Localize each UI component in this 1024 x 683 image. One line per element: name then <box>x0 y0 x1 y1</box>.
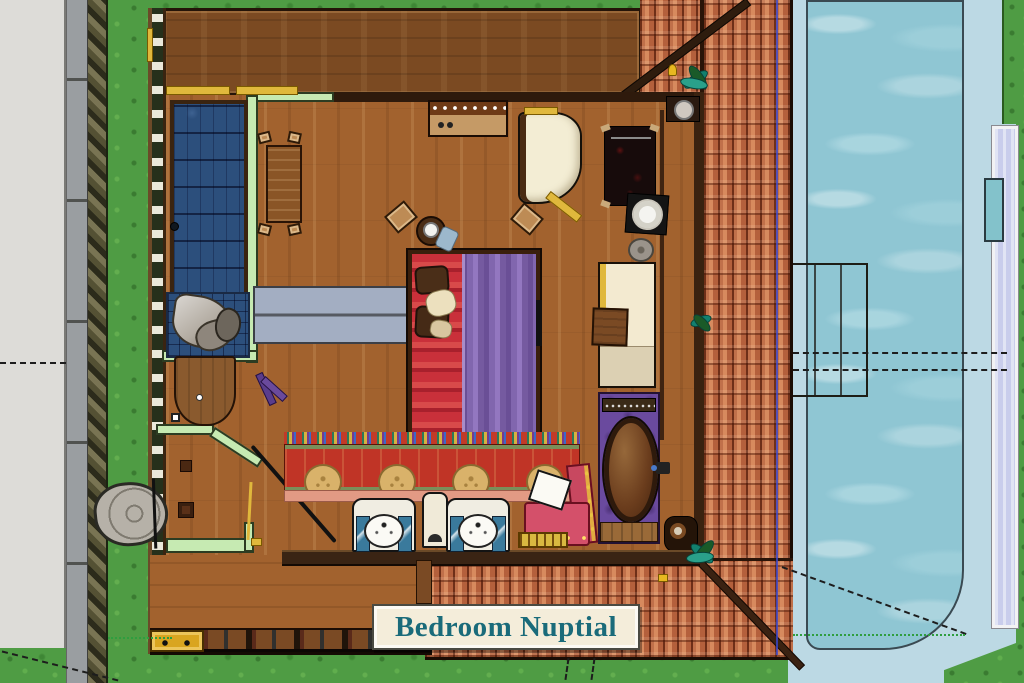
roof-plant-bottom <box>684 534 722 576</box>
green-guide-pool <box>793 634 965 636</box>
rug-tassel <box>600 124 611 133</box>
screen-knob <box>170 222 179 231</box>
console-knob-row <box>430 102 506 115</box>
rug-top-line <box>611 137 651 139</box>
room-label: Bedroom Nuptial <box>372 604 640 650</box>
gold-torch-top <box>668 64 677 76</box>
green-guide-left <box>108 637 172 639</box>
section-line-pool-2 <box>793 369 1007 371</box>
gold-torch-bottom <box>658 574 668 582</box>
section-guide-line-blue <box>776 0 778 655</box>
chaise-frame-yellow-top <box>524 107 558 115</box>
console-knob <box>438 122 444 128</box>
patio-area <box>0 0 66 648</box>
blue-screen-panel <box>170 100 248 300</box>
rolled-towel <box>631 198 664 231</box>
yellow-post-left <box>147 28 153 62</box>
center-cabinet <box>422 492 448 548</box>
faucet-valve <box>651 465 657 471</box>
sink-right <box>446 498 510 552</box>
wooden-bathtub <box>604 418 658 522</box>
gold-step-lamp <box>150 630 204 652</box>
white-bowl <box>423 222 439 238</box>
desk <box>266 145 302 223</box>
yellow-beam-2 <box>236 86 298 95</box>
daybed-blanket <box>600 346 654 386</box>
desk-chair <box>287 131 302 144</box>
bathtub-head-rail <box>602 398 656 412</box>
daybed-tray <box>591 307 628 346</box>
section-line-pool-1 <box>793 352 1007 354</box>
flat-roof-band <box>158 8 642 96</box>
cord-hook <box>251 538 262 546</box>
yellow-beam-1 <box>166 86 230 95</box>
bench <box>253 286 408 344</box>
gallery-basin-stone <box>674 100 694 120</box>
grass-corner-top-right <box>1002 0 1024 124</box>
toilet-vanity <box>174 356 236 426</box>
pool-bridge <box>788 263 868 397</box>
floor-hatch-small <box>180 460 192 472</box>
wall-plant-east <box>688 306 716 338</box>
section-line-left <box>0 362 66 364</box>
bed-rail-handle <box>536 300 542 346</box>
bathtub-step <box>600 522 658 542</box>
toilet-knob <box>196 394 203 401</box>
floor-hatch-large <box>178 502 194 518</box>
sink-basin <box>458 514 498 548</box>
sink-basin <box>364 514 404 548</box>
pool-step-tab <box>984 178 1004 242</box>
survey-tick-2 <box>590 658 595 680</box>
survey-tick-1 <box>564 658 569 680</box>
south-wall-green <box>166 538 254 553</box>
north-wall-wood <box>334 92 700 102</box>
shell-ornament <box>428 534 442 542</box>
bathtub-faucet <box>656 462 670 474</box>
towel-stand <box>625 193 670 236</box>
roof-plant-top <box>676 58 716 102</box>
boundary-concrete-wall <box>66 0 88 683</box>
toilet-corner-fitting <box>171 413 180 422</box>
console-dresser <box>428 100 508 137</box>
gold-candle-tray <box>518 532 568 548</box>
boundary-stone-coping <box>88 0 108 683</box>
room-label-text: Bedroom Nuptial <box>395 611 617 644</box>
interior-rail <box>660 110 664 440</box>
vanity-counter <box>282 550 700 566</box>
counter-post <box>416 560 432 604</box>
console-knob <box>447 122 453 128</box>
floor-plan-canvas: Bedroom Nuptial <box>0 0 1024 683</box>
sink-left <box>352 498 416 552</box>
stone-bowl <box>628 238 654 262</box>
bed-duvet-purple <box>462 254 536 442</box>
